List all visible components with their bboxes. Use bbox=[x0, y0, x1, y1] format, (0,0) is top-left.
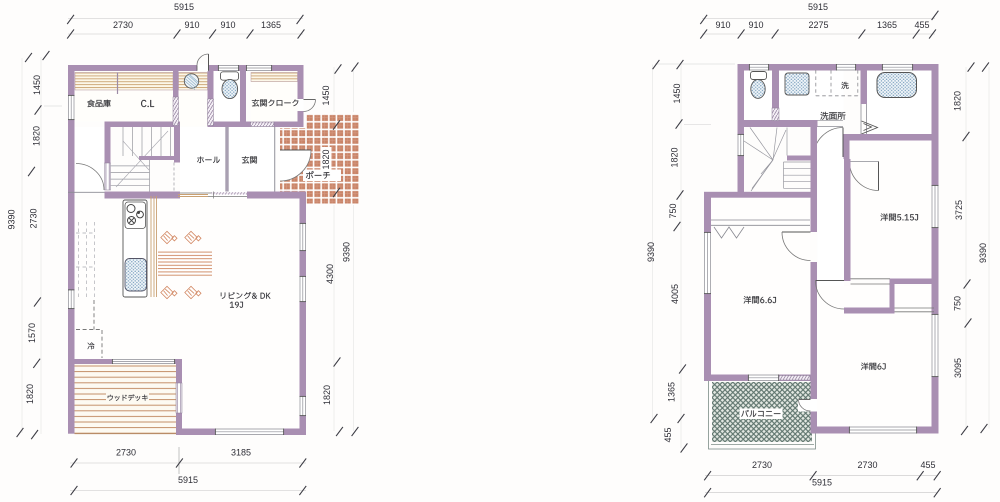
svg-text:3185: 3185 bbox=[231, 448, 251, 458]
svg-text:9390: 9390 bbox=[7, 209, 17, 229]
svg-text:2730: 2730 bbox=[116, 448, 136, 458]
svg-text:1365: 1365 bbox=[877, 20, 897, 30]
svg-text:1450: 1450 bbox=[672, 83, 682, 103]
svg-text:9390: 9390 bbox=[646, 242, 656, 262]
svg-text:455: 455 bbox=[920, 460, 935, 470]
svg-text:5915: 5915 bbox=[174, 2, 194, 12]
svg-text:1820: 1820 bbox=[25, 384, 35, 404]
svg-text:2730: 2730 bbox=[29, 208, 39, 228]
svg-text:9390: 9390 bbox=[342, 242, 352, 262]
svg-text:2730: 2730 bbox=[113, 20, 133, 30]
svg-text:1820: 1820 bbox=[32, 126, 42, 146]
svg-text:4005: 4005 bbox=[670, 284, 680, 304]
svg-text:5915: 5915 bbox=[812, 478, 832, 488]
svg-text:455: 455 bbox=[914, 20, 929, 30]
svg-text:1450: 1450 bbox=[321, 85, 331, 105]
svg-text:1365: 1365 bbox=[261, 20, 281, 30]
svg-text:910: 910 bbox=[184, 20, 199, 30]
svg-text:5915: 5915 bbox=[178, 475, 198, 485]
svg-text:1820: 1820 bbox=[953, 91, 963, 111]
svg-text:1450: 1450 bbox=[32, 75, 42, 95]
svg-text:2275: 2275 bbox=[808, 20, 828, 30]
svg-text:750: 750 bbox=[953, 296, 963, 311]
svg-text:3725: 3725 bbox=[954, 200, 964, 220]
svg-text:1820: 1820 bbox=[322, 385, 332, 405]
svg-text:5915: 5915 bbox=[808, 2, 828, 12]
svg-text:1820: 1820 bbox=[321, 149, 331, 169]
svg-text:3095: 3095 bbox=[953, 358, 963, 378]
svg-text:2730: 2730 bbox=[857, 460, 877, 470]
svg-text:4300: 4300 bbox=[325, 264, 335, 284]
svg-text:2730: 2730 bbox=[752, 460, 772, 470]
svg-text:1820: 1820 bbox=[670, 147, 680, 167]
svg-text:910: 910 bbox=[748, 20, 763, 30]
svg-text:910: 910 bbox=[715, 20, 730, 30]
svg-text:1365: 1365 bbox=[667, 382, 677, 402]
svg-text:455: 455 bbox=[663, 427, 673, 442]
svg-text:750: 750 bbox=[668, 203, 678, 218]
svg-text:1570: 1570 bbox=[27, 323, 37, 343]
svg-text:9390: 9390 bbox=[978, 243, 988, 263]
svg-text:910: 910 bbox=[220, 20, 235, 30]
